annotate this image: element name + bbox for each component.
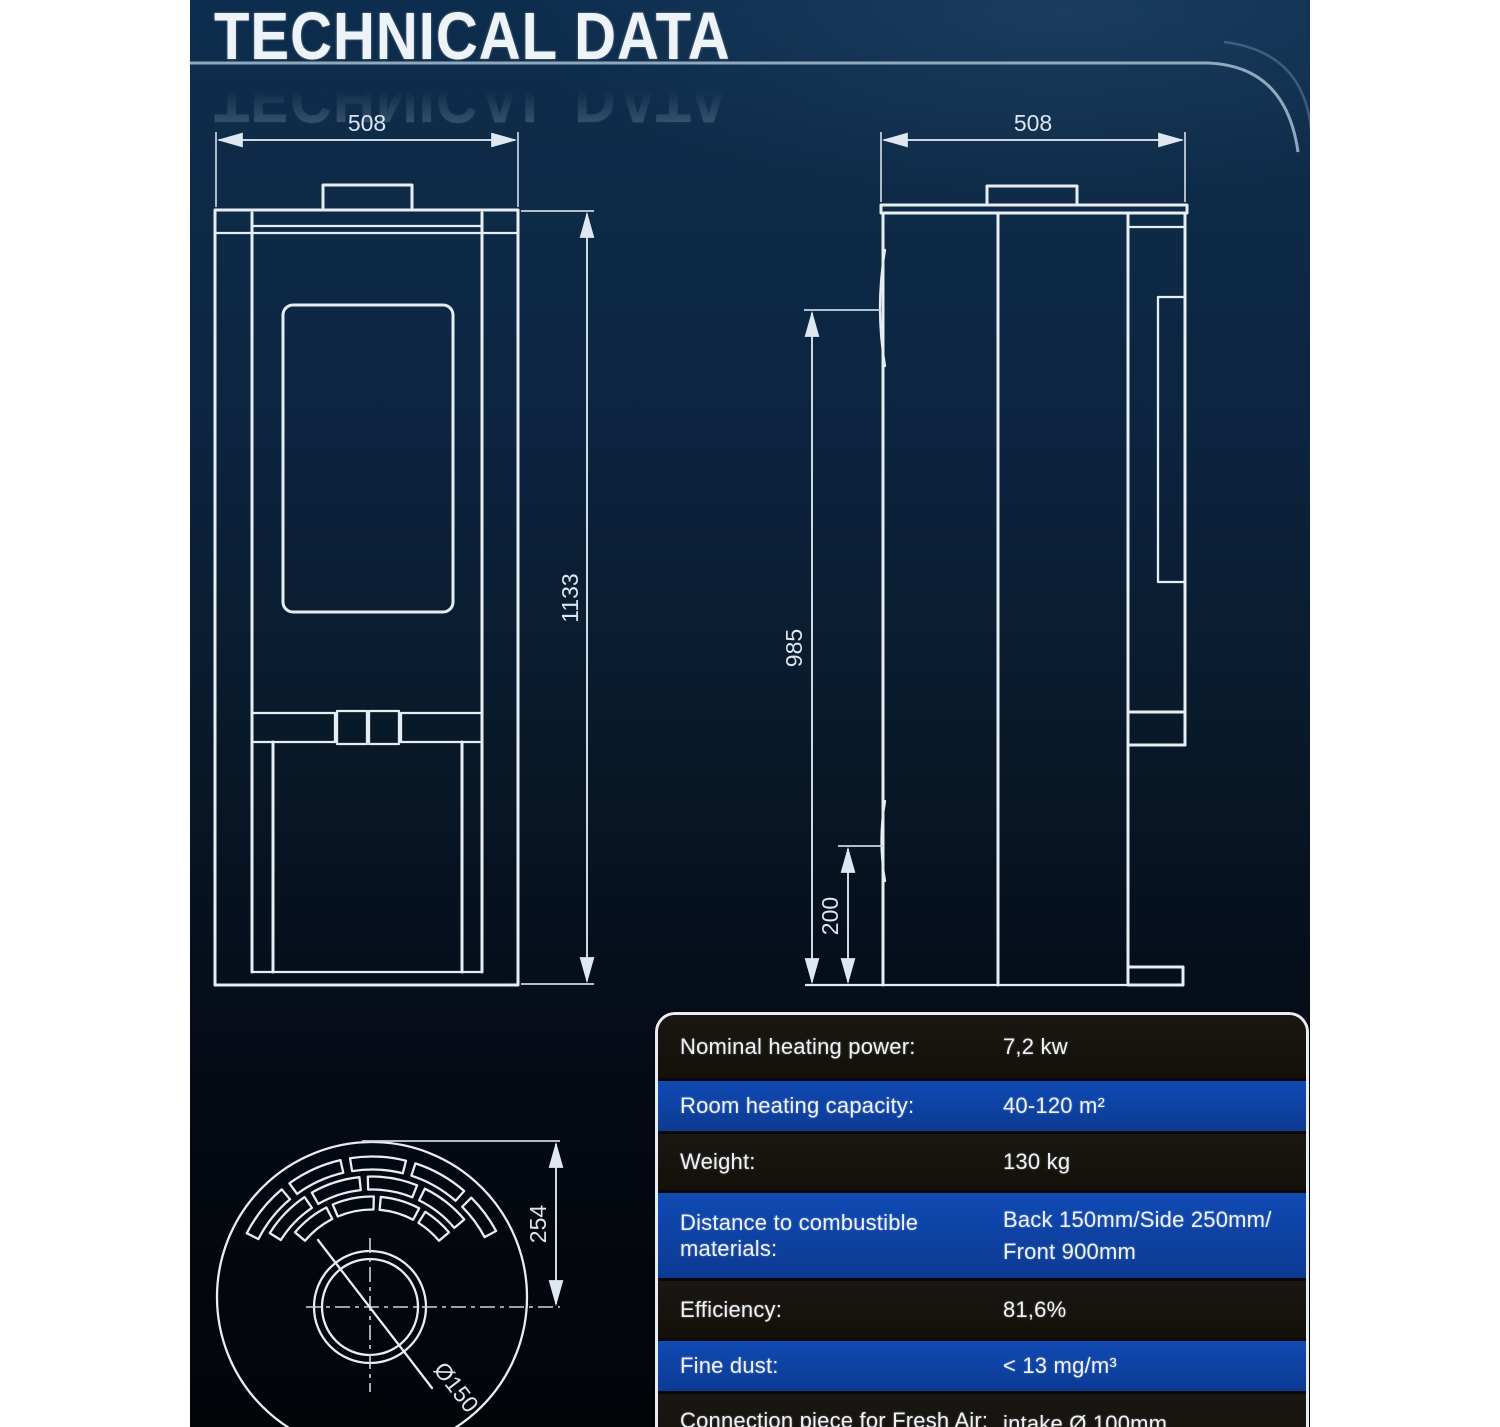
technical-datasheet-page: TECHNICAL DATA TECHNICAL DATA: [0, 0, 1500, 1427]
vent-slot: [350, 1156, 406, 1173]
spec-label: Room heating capacity:: [658, 1093, 1003, 1119]
side-band: [1128, 712, 1185, 745]
spec-value: Back 150mm/Side 250mm/Front 900mm: [1003, 1204, 1306, 1268]
spec-value: intake Ø 100mm: [1003, 1408, 1306, 1427]
vent-slot: [368, 1177, 417, 1198]
side-base: [1128, 967, 1183, 985]
side-panel-recess: [1158, 297, 1185, 582]
top-radius-dimension: 254: [525, 1205, 551, 1244]
vent-slot: [462, 1198, 496, 1237]
spec-value: < 13 mg/m³: [1003, 1350, 1306, 1382]
top-view-drawing: Ø150 254: [217, 1141, 560, 1427]
side-width-dimension: 508: [1014, 110, 1052, 136]
spec-label: Nominal heating power:: [658, 1034, 1003, 1060]
spec-value: 40-120 m²: [1003, 1090, 1306, 1122]
table-row: Fine dust: < 13 mg/m³: [658, 1338, 1306, 1394]
front-height-dimension: 1133: [557, 573, 583, 622]
spec-label: Weight:: [658, 1149, 1003, 1175]
top-plate-circle: [217, 1142, 527, 1427]
spec-table: Nominal heating power: 7,2 kw Room heati…: [655, 1012, 1309, 1427]
side-view-drawing: 508 985: [781, 110, 1187, 985]
vent-slot: [419, 1189, 464, 1228]
table-row: Weight: 130 kg: [658, 1134, 1306, 1190]
flue-diameter-leader: [318, 1240, 432, 1388]
spec-label: Efficiency:: [658, 1297, 1003, 1323]
side-clearance-dimension: 200: [817, 897, 843, 935]
spec-value: 7,2 kw: [1003, 1031, 1306, 1063]
spec-label: Distance to combustible materials:: [658, 1210, 1003, 1262]
front-width-dimension: 508: [348, 110, 386, 136]
door-window-front: [283, 305, 453, 612]
stove-outline-front: [215, 210, 518, 985]
spec-label: Fine dust:: [658, 1353, 1003, 1379]
vent-slot: [333, 1196, 374, 1216]
table-row: Efficiency: 81,6%: [658, 1281, 1306, 1338]
vent-slot: [270, 1197, 312, 1240]
table-row: Distance to combustible materials: Back …: [658, 1190, 1306, 1281]
spec-value: 130 kg: [1003, 1146, 1306, 1178]
side-height-dimension: 985: [781, 629, 807, 667]
table-row: Room heating capacity: 40-120 m²: [658, 1078, 1306, 1134]
vent-slot: [380, 1197, 420, 1220]
spec-label: Connection piece for Fresh Air:: [658, 1408, 1003, 1427]
flue-diameter-dimension: Ø150: [429, 1357, 484, 1417]
table-row: Nominal heating power: 7,2 kw: [658, 1015, 1306, 1078]
vent-slot: [295, 1208, 332, 1241]
front-view-drawing: 508: [215, 110, 594, 985]
control-band-front: [252, 711, 482, 744]
spec-value: 81,6%: [1003, 1294, 1306, 1326]
datasheet-background: TECHNICAL DATA TECHNICAL DATA: [190, 0, 1310, 1427]
table-row: Connection piece for Fresh Air: intake Ø…: [658, 1394, 1306, 1427]
flue-collar-front: [323, 185, 412, 210]
flue-collar-side: [987, 186, 1077, 205]
